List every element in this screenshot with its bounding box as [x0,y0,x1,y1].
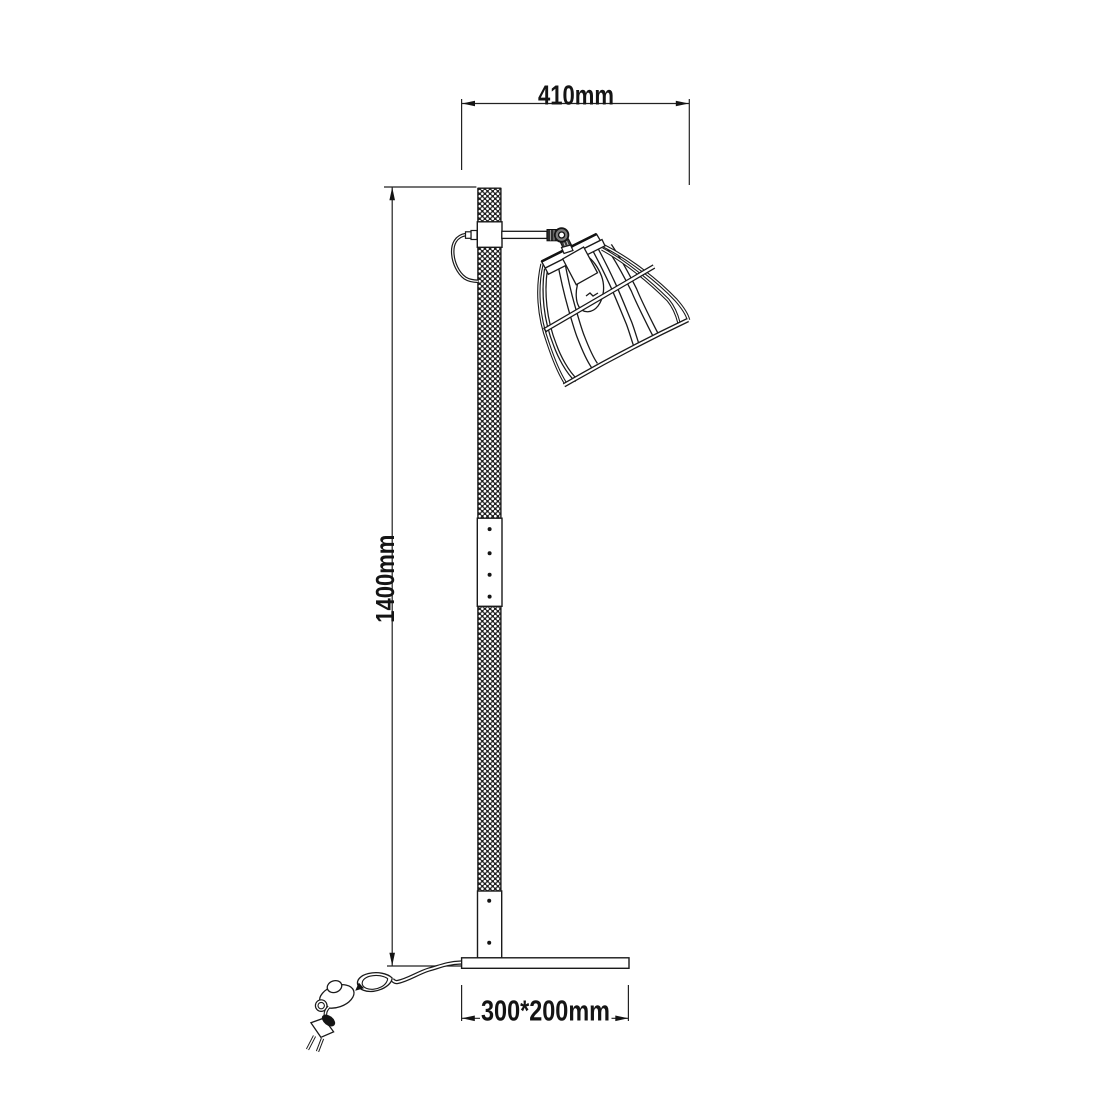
svg-text:300*200mm: 300*200mm [481,995,610,1027]
svg-text:1400mm: 1400mm [370,535,400,623]
svg-text:410mm: 410mm [538,79,614,110]
